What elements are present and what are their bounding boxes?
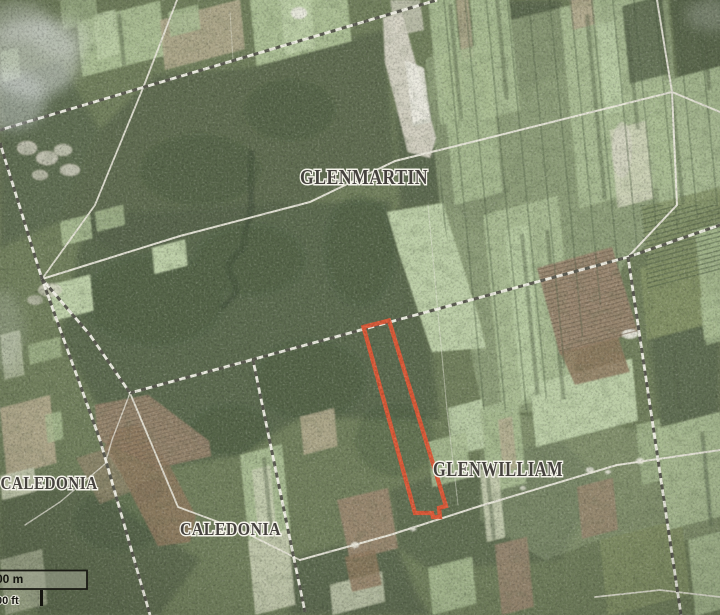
svg-text:CALEDONIA: CALEDONIA bbox=[180, 519, 281, 539]
svg-text:00 m: 00 m bbox=[0, 572, 23, 586]
svg-text:GLENMARTIN: GLENMARTIN bbox=[300, 165, 428, 189]
svg-text:00 ft: 00 ft bbox=[0, 595, 19, 607]
svg-text:CALEDONIA: CALEDONIA bbox=[1, 473, 98, 493]
svg-text:GLENWILLIAM: GLENWILLIAM bbox=[433, 457, 563, 481]
